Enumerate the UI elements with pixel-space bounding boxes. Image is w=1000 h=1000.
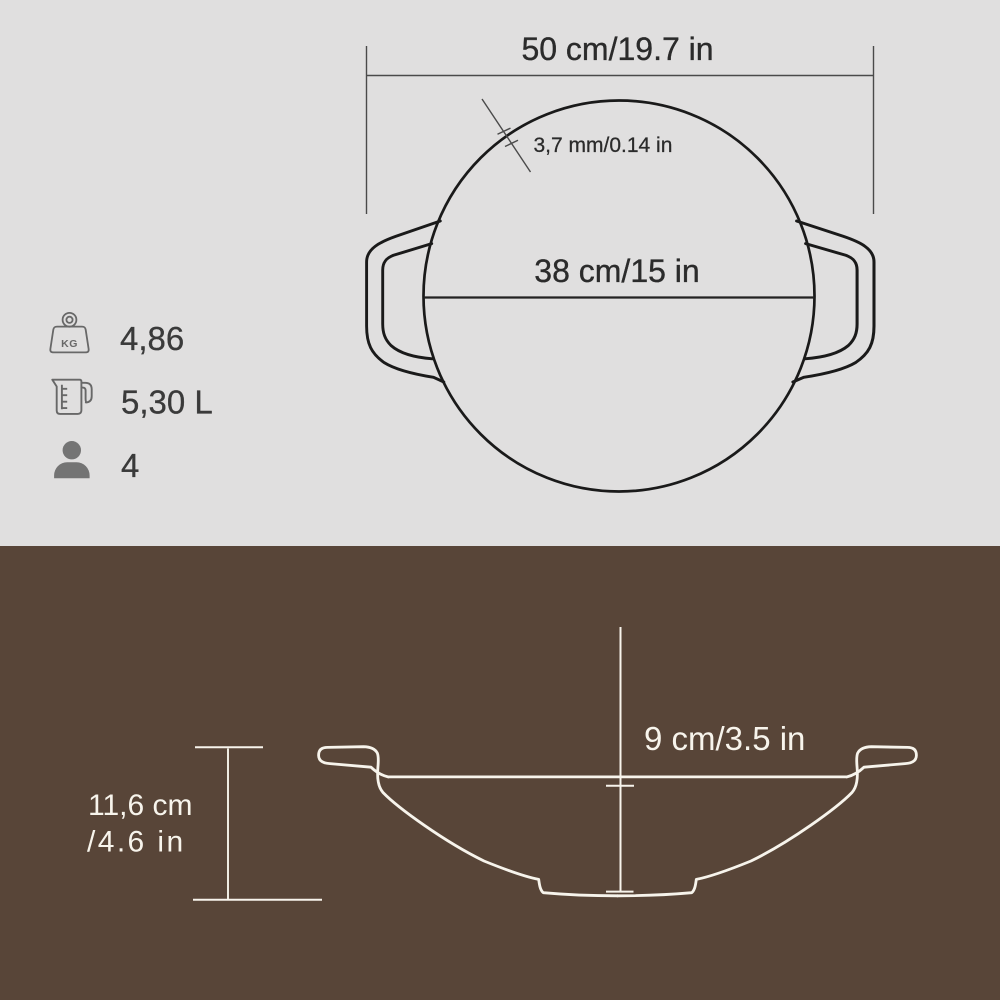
svg-text:KG: KG (61, 338, 78, 350)
svg-text:50 cm/19.7 in: 50 cm/19.7 in (521, 31, 713, 67)
svg-text:9 cm/3.5 in: 9 cm/3.5 in (644, 720, 805, 757)
svg-text:/4.6 in: /4.6 in (87, 826, 186, 859)
svg-text:5,30 L: 5,30 L (121, 384, 213, 421)
svg-text:4,86: 4,86 (120, 320, 184, 357)
svg-text:3,7 mm/0.14 in: 3,7 mm/0.14 in (534, 134, 673, 157)
svg-text:4: 4 (121, 447, 139, 484)
svg-text:11,6 cm: 11,6 cm (88, 789, 193, 822)
svg-text:38 cm/15 in: 38 cm/15 in (534, 253, 699, 289)
